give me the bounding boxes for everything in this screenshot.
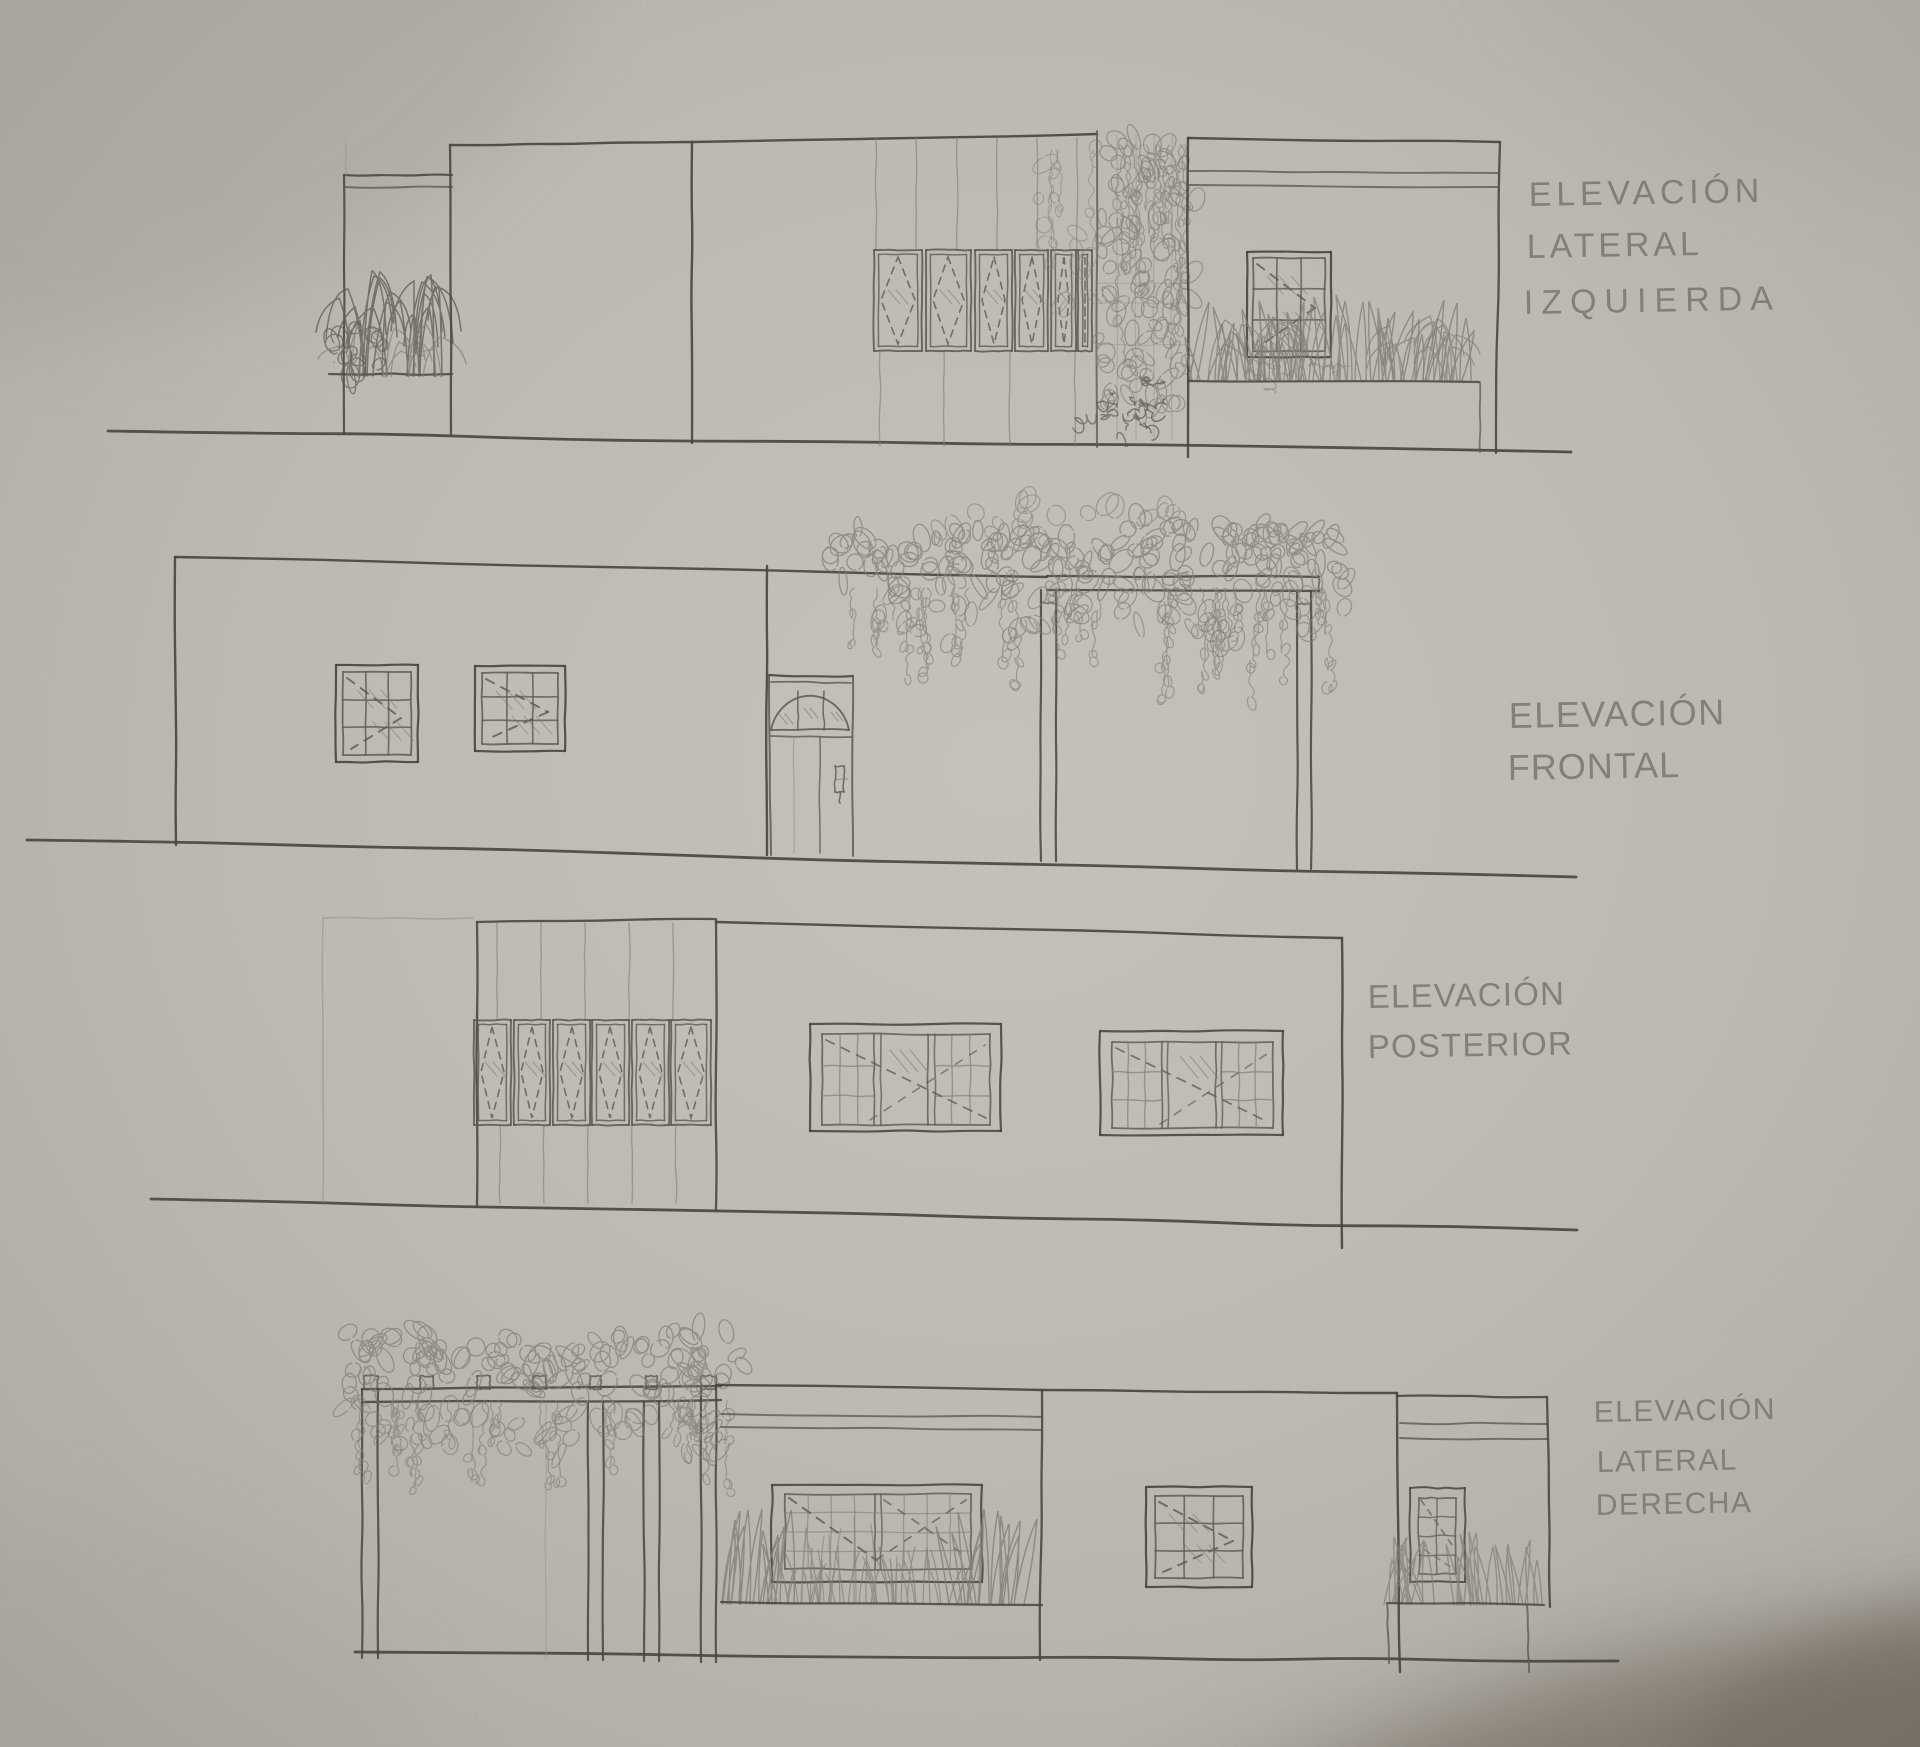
svg-text:DERECHA: DERECHA [1596,1486,1753,1522]
svg-text:ELEVACIÓN: ELEVACIÓN [1528,172,1764,214]
svg-text:LATERAL: LATERAL [1597,1444,1739,1479]
svg-text:IZQUIERDA: IZQUIERDA [1523,280,1781,322]
svg-text:ELEVACIÓN: ELEVACIÓN [1594,1393,1777,1429]
svg-text:FRONTAL: FRONTAL [1507,744,1680,788]
svg-text:POSTERIOR: POSTERIOR [1367,1024,1573,1065]
svg-text:LATERAL: LATERAL [1526,225,1703,266]
svg-text:ELEVACIÓN: ELEVACIÓN [1367,975,1565,1015]
svg-text:ELEVACIÓN: ELEVACIÓN [1508,691,1726,736]
